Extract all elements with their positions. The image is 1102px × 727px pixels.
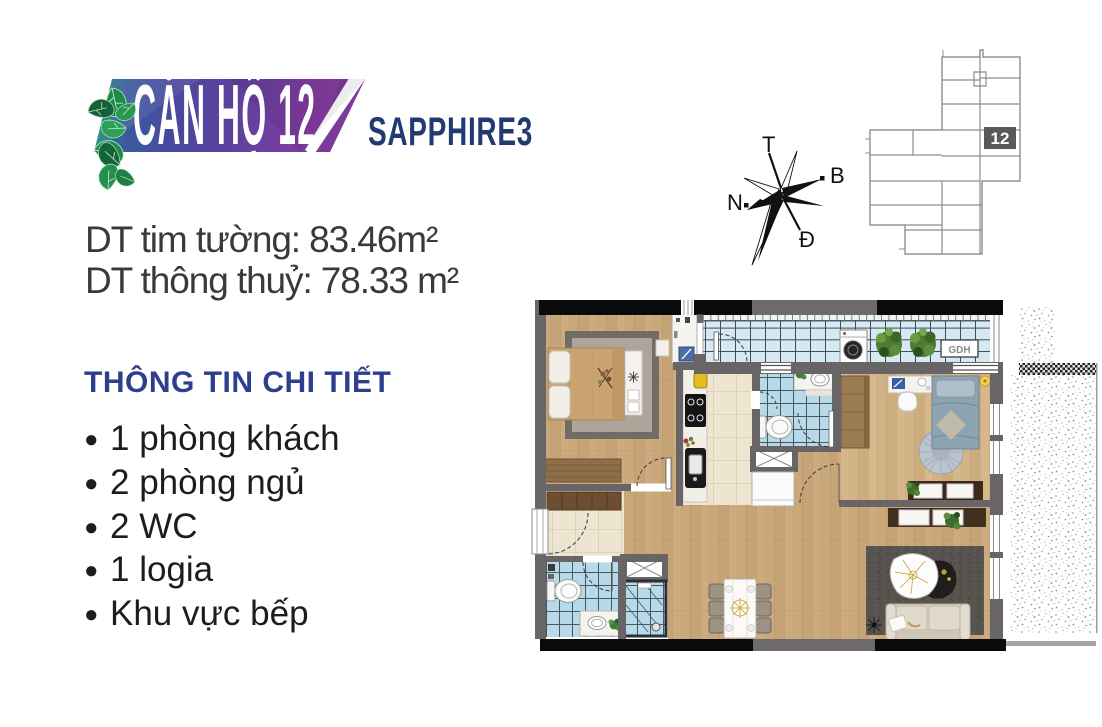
svg-text:Đ: Đ	[799, 227, 815, 252]
svg-text:GDH: GDH	[948, 345, 970, 356]
svg-text:N: N	[727, 190, 743, 215]
svg-text:SAPPHIRE3: SAPPHIRE3	[368, 110, 533, 154]
svg-text:T: T	[762, 132, 775, 157]
svg-text:B: B	[830, 163, 845, 188]
svg-text:12: 12	[991, 129, 1010, 148]
svg-text:CĂN HỘ 12: CĂN HỘ 12	[133, 66, 317, 163]
